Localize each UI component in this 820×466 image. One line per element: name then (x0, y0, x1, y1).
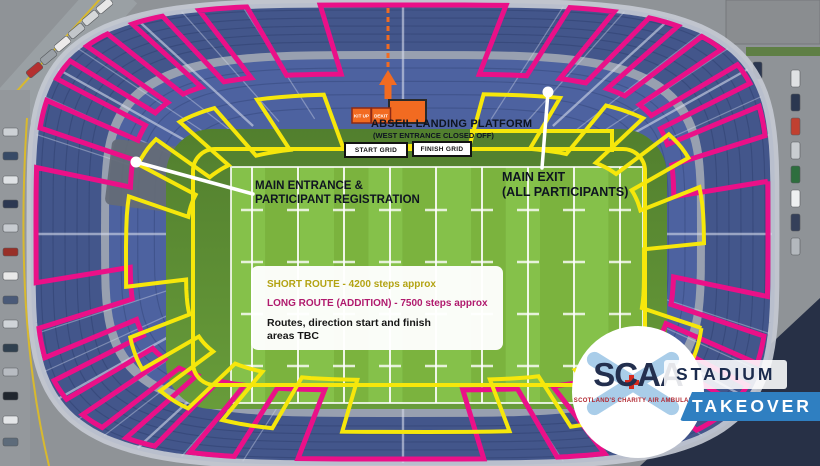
route-legend-box: SHORT ROUTE - 4200 steps approx LONG ROU… (251, 266, 503, 350)
main-entrance-line1: MAIN ENTRANCE & (255, 179, 420, 193)
long-route-legend: LONG ROUTE (ADDITION) - 7500 steps appro… (267, 298, 503, 309)
scaa-tagline: SCOTLAND'S CHARITY AIR AMBULANCE (572, 398, 704, 404)
scaa-logo: SCAA SCOTLAND'S CHARITY AIR AMBULANCE (572, 326, 704, 458)
main-exit-callout: MAIN EXIT (ALL PARTICIPANTS) (502, 170, 628, 200)
finish-grid-label: FINISH GRID (421, 146, 464, 153)
finish-grid-marker: FINISH GRID (412, 141, 472, 157)
abseil-subtitle: (WEST ENTRANCE CLOSED OFF) (373, 131, 532, 140)
main-exit-line1: MAIN EXIT (502, 170, 628, 185)
main-entrance-callout: MAIN ENTRANCE & PARTICIPANT REGISTRATION (255, 179, 420, 207)
exit-dot (543, 87, 554, 98)
kit-up-tent-label: KIT UP (354, 114, 369, 119)
route-note-line1: Routes, direction start and finish (267, 317, 503, 330)
main-exit-line2: (ALL PARTICIPANTS) (502, 185, 628, 200)
takeover-badge: TAKEOVER (680, 392, 820, 421)
hedge-strip (746, 47, 820, 56)
abseil-callout: ABSEIL LANDING PLATFORM (WEST ENTRANCE C… (371, 118, 532, 140)
route-note-line2: areas TBC (267, 330, 503, 343)
start-grid-marker: START GRID (344, 142, 408, 158)
stadium-takeover-map: KIT UP DEKIT ABSEIL LANDING PLATFORM (WE… (0, 0, 820, 466)
stadium-badge: STADIUM (664, 360, 787, 389)
main-entrance-line2: PARTICIPANT REGISTRATION (255, 193, 420, 207)
building-top-right (726, 0, 820, 44)
start-grid-label: START GRID (355, 147, 397, 154)
abseil-title: ABSEIL LANDING PLATFORM (371, 118, 532, 130)
short-route-legend: SHORT ROUTE - 4200 steps approx (267, 279, 503, 290)
entrance-dot (131, 157, 142, 168)
